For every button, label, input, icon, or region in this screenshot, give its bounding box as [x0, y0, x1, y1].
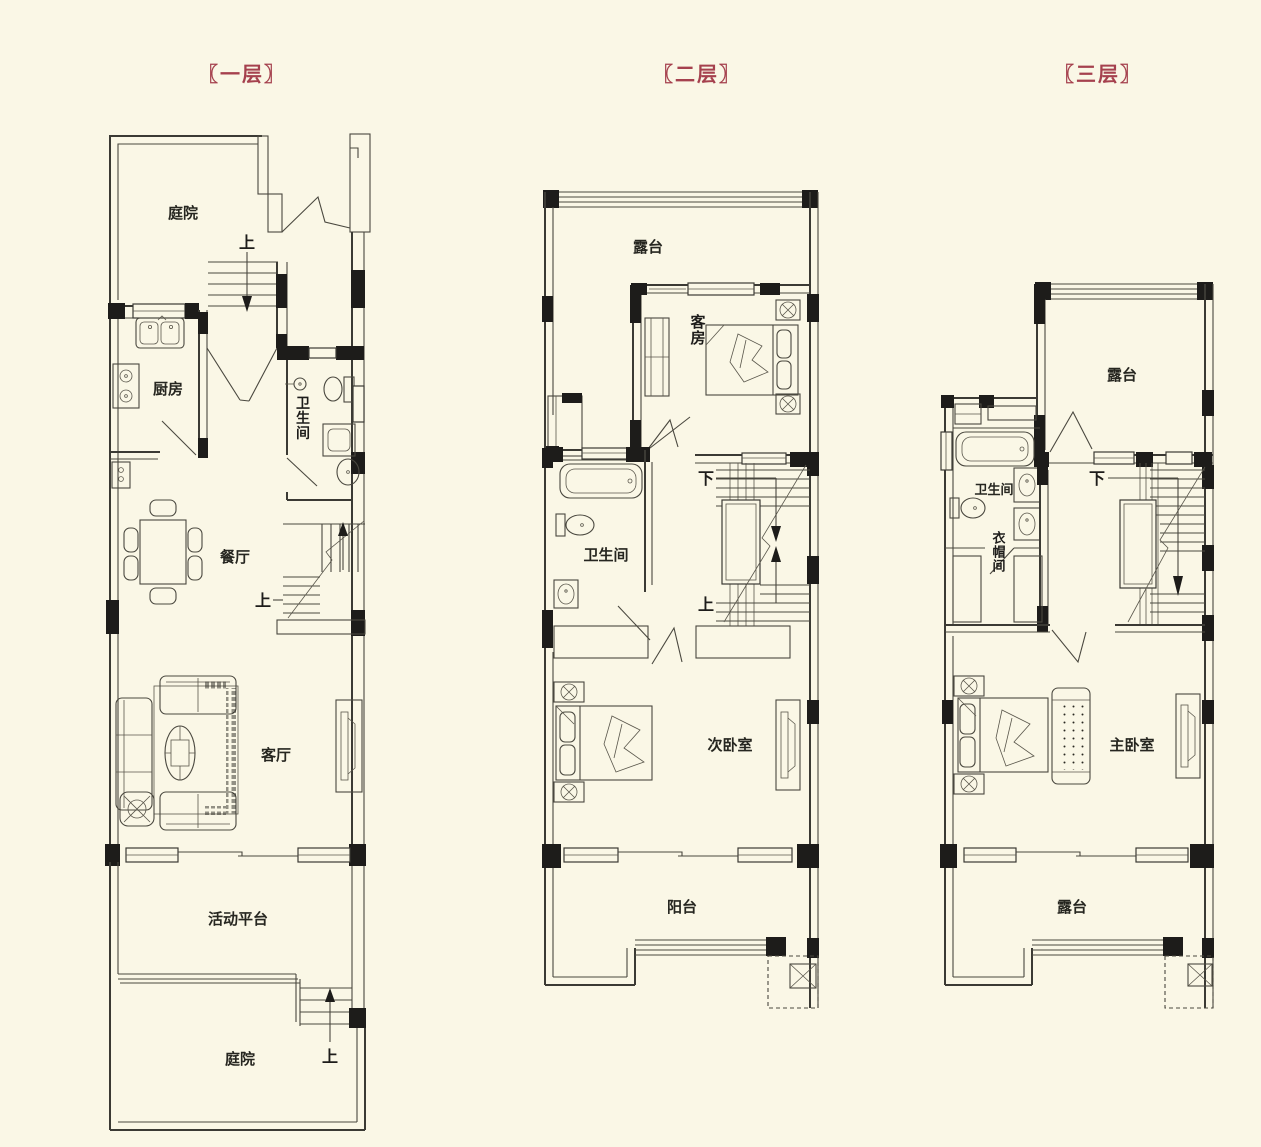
room-label-master: 主卧室 [1109, 736, 1154, 754]
floor2-outer-walls [542, 192, 819, 1008]
room-label-terrace-top-f3: 露台 [1107, 366, 1137, 384]
room-label-guest: 客房 [689, 313, 707, 346]
terrace-railing [543, 190, 818, 208]
room-label-courtyard-top: 庭院 [168, 204, 198, 222]
floor-1-plan: 庭院 [105, 134, 370, 1130]
bathroom-door [287, 458, 317, 486]
floor3-terrace-wall [1034, 412, 1213, 467]
courtyard-top-fence [110, 134, 370, 308]
floor3-stairs [1052, 463, 1205, 662]
bedroom-door [1052, 630, 1086, 662]
sofa-set [116, 676, 238, 830]
room-label-kitchen: 厨房 [153, 380, 183, 398]
floorplan-page: 〖一层〗 〖二层〗 〖三层〗 [0, 0, 1261, 1147]
floor1-bathroom [277, 346, 364, 500]
stairs-up-label-top: 上 [239, 234, 255, 252]
toilet [950, 498, 985, 518]
tv-cabinet [1176, 694, 1200, 778]
closet-strips [554, 626, 790, 664]
floor2-bathroom [542, 420, 652, 648]
stairs-up-label-mid: 上 [255, 592, 271, 610]
side-ledge [545, 393, 582, 456]
bench [1052, 688, 1090, 784]
coffee-table [165, 726, 195, 780]
room-label-platform: 活动平台 [208, 910, 268, 928]
room-label-bathroom-f2: 卫生间 [583, 546, 628, 564]
bed [958, 698, 1048, 772]
master-bedroom [942, 632, 1200, 862]
bedroom-door [652, 628, 682, 664]
dining-set [124, 500, 202, 604]
water-heater [112, 462, 130, 488]
floor-2-plan: 露台 [542, 190, 819, 1008]
room-label-cloakroom: 衣帽间 [991, 530, 1006, 573]
room-label-bathroom-f1: 卫生间 [295, 396, 311, 441]
room-label-courtyard-bottom: 庭院 [225, 1050, 255, 1068]
room-label-terrace-bottom-f3: 露台 [1057, 898, 1087, 916]
room-label-balcony: 阳台 [667, 898, 697, 916]
wall-hung-basin [285, 378, 306, 390]
tv-cabinet [336, 700, 362, 792]
entry-door [207, 348, 277, 401]
floor-texture [226, 688, 236, 814]
secondary-bedroom [545, 648, 800, 862]
balcony [545, 868, 818, 1008]
stairs-up-label-bottom: 上 [322, 1048, 338, 1066]
stairs-down-label-f3: 下 [1089, 471, 1105, 488]
room-label-bathroom-f3: 卫生间 [974, 482, 1013, 497]
stairs-down-label-f2: 下 [698, 471, 714, 488]
floor1-south-wall [126, 848, 350, 862]
terrace-door [1050, 412, 1092, 452]
shower [323, 424, 355, 456]
stairs-up-label-f2: 上 [698, 596, 714, 614]
floor-3-plan: 露台 [940, 282, 1214, 1008]
terrace-bottom [945, 868, 1213, 1008]
toilet [324, 377, 354, 402]
basin [554, 580, 578, 608]
bathtub [956, 432, 1034, 466]
bathroom-door [618, 606, 650, 640]
tv-cabinet [776, 700, 800, 790]
double-basin [1014, 468, 1040, 540]
bed [556, 706, 652, 780]
floor3-south-wall [940, 844, 1209, 868]
guest-room [630, 283, 810, 455]
toilet [556, 514, 594, 536]
guest-bed [706, 325, 798, 395]
entry-stairs [208, 252, 287, 348]
stove [113, 364, 139, 408]
room-label-terrace-f2: 露台 [633, 238, 663, 256]
gate-door [282, 197, 350, 232]
room-label-dining: 餐厅 [220, 548, 250, 566]
room-label-bedroom2: 次卧室 [707, 736, 752, 754]
guest-wardrobe [645, 318, 669, 396]
room-label-living: 客厅 [260, 746, 291, 764]
kitchen-sink [136, 316, 184, 348]
floor-plan-canvas: 庭院 [0, 0, 1261, 1147]
floor2-south-wall [542, 844, 816, 868]
platform-and-lower-courtyard [110, 862, 366, 1130]
bathtub [560, 464, 642, 498]
kitchen-door [162, 421, 196, 455]
